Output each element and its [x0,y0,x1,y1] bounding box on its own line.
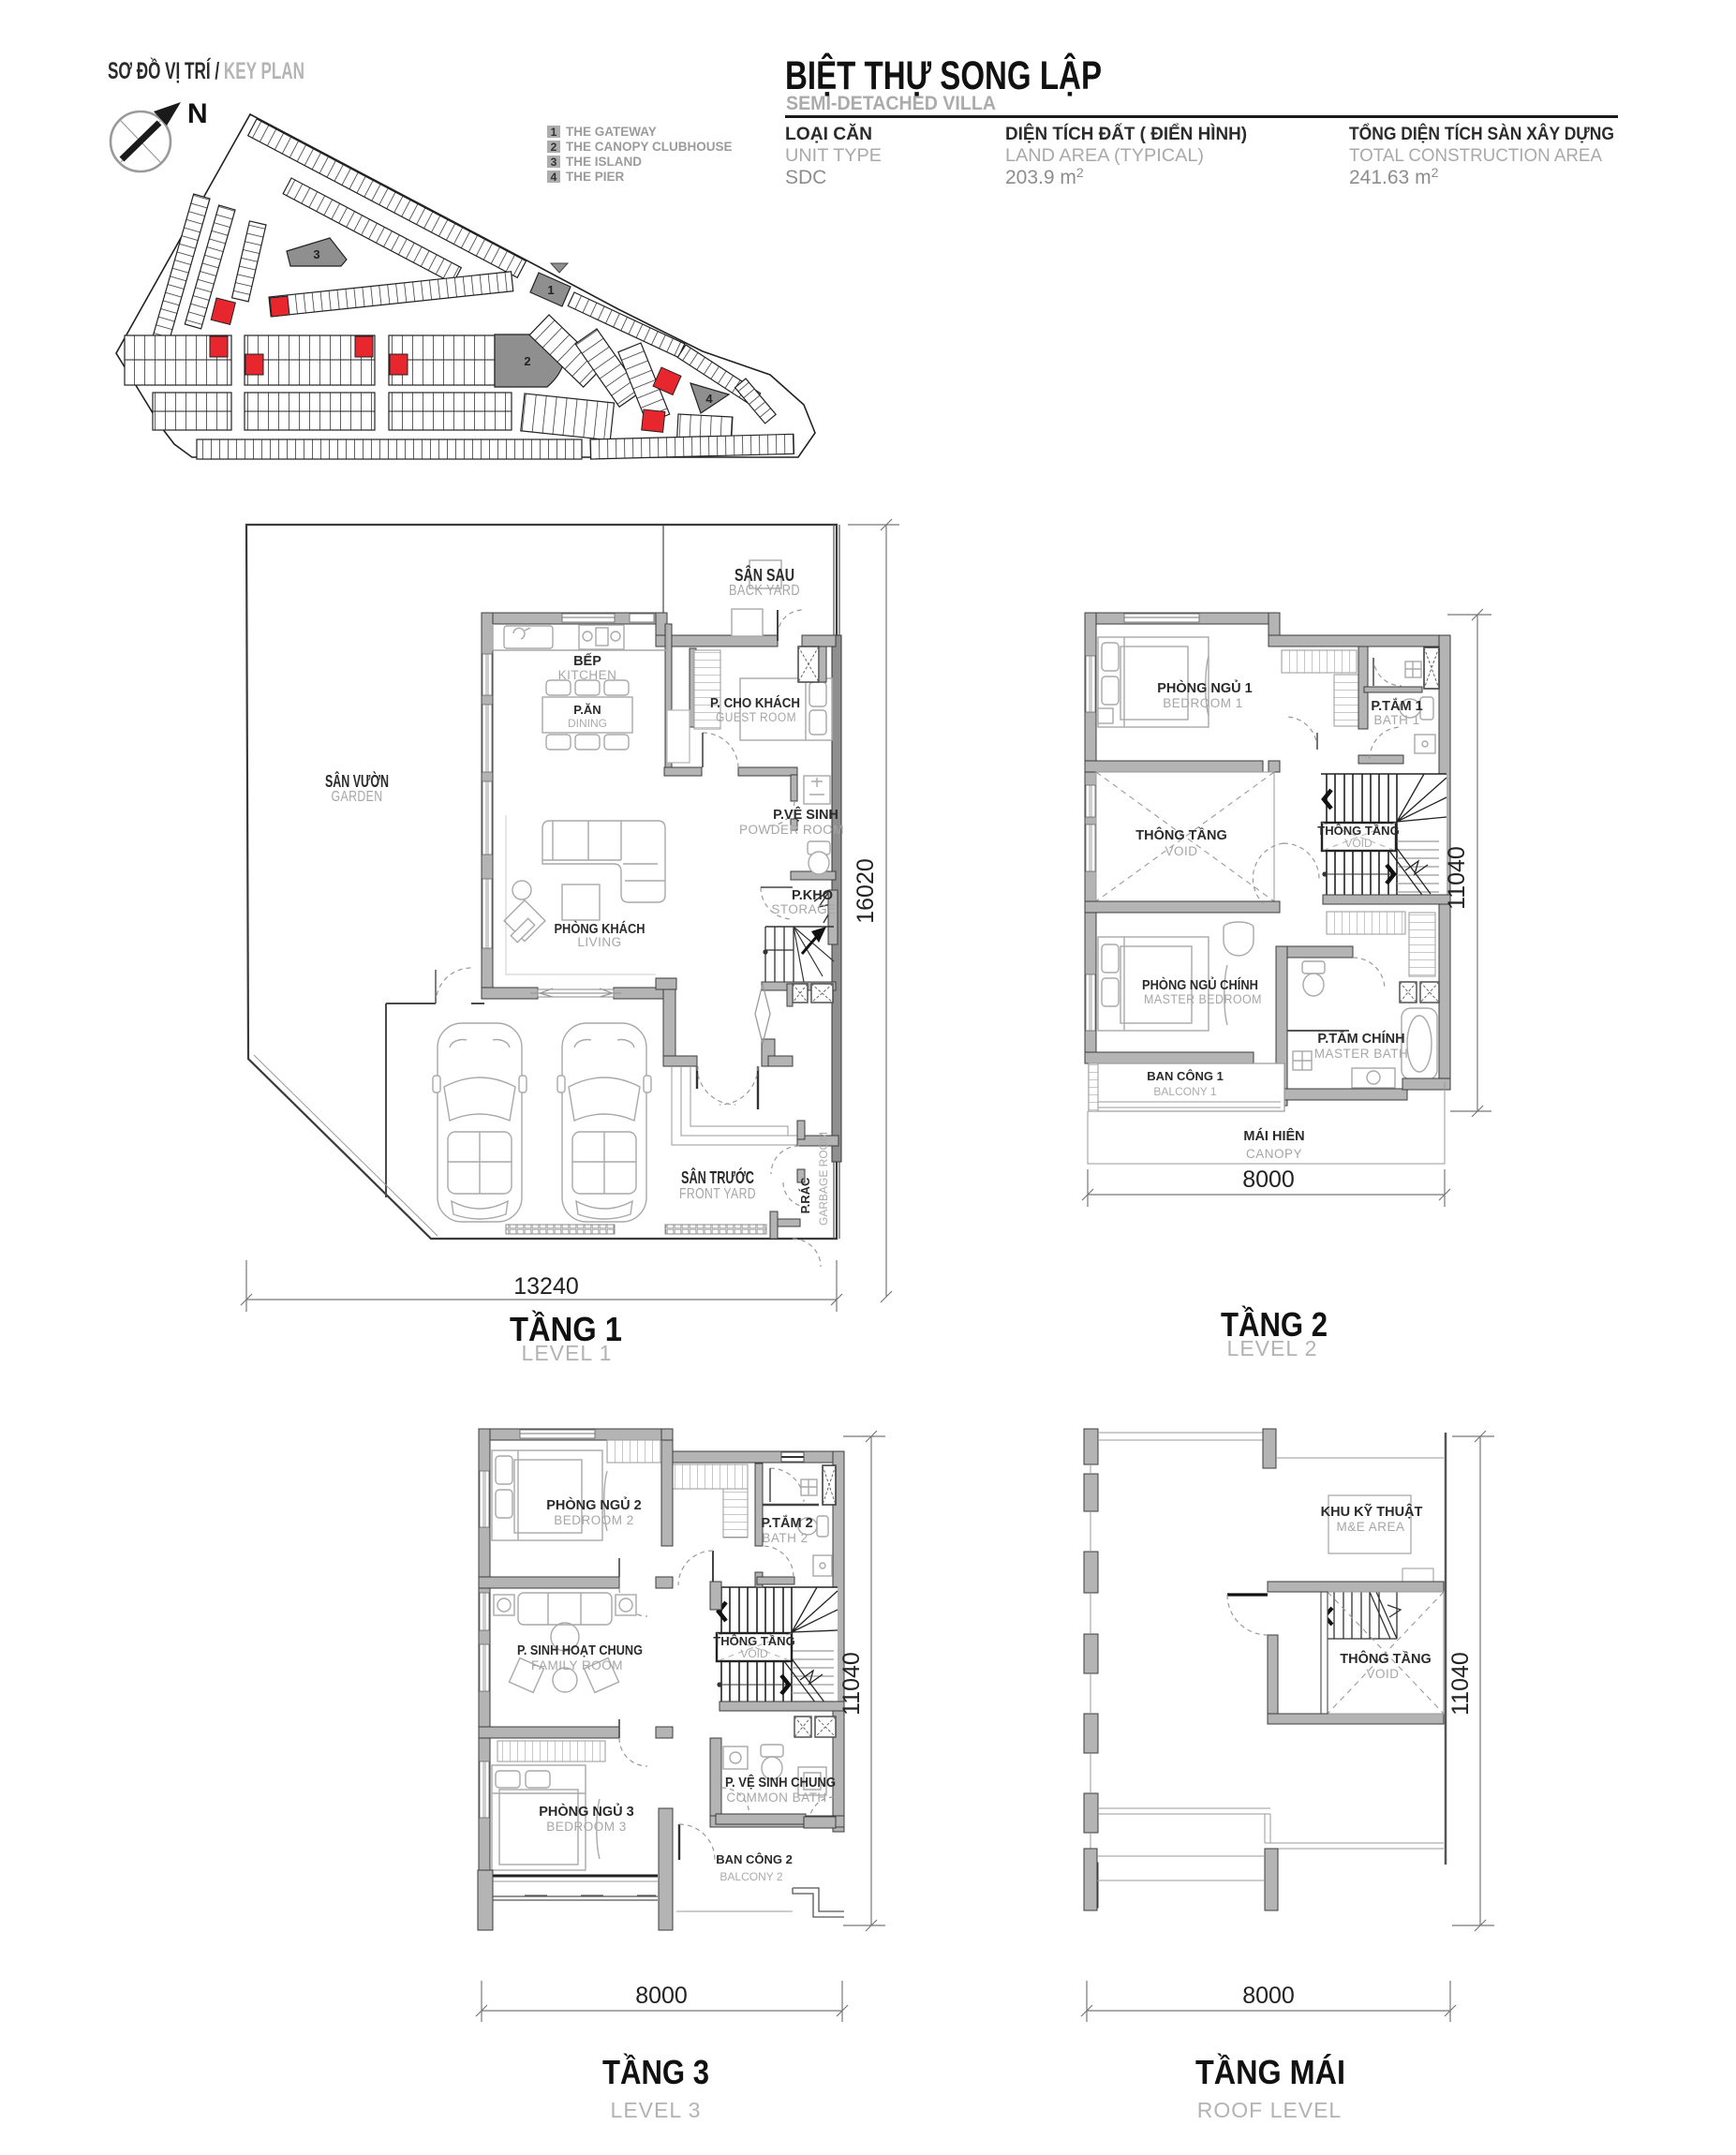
svg-text:BAN CÔNG 1: BAN CÔNG 1 [1147,1069,1224,1083]
svg-text:P.KHO: P.KHO [792,888,833,903]
svg-text:8000: 8000 [1242,1167,1295,1193]
svg-text:FAMILY ROOM: FAMILY ROOM [531,1658,623,1672]
svg-text:M&E AREA: M&E AREA [1336,1520,1404,1534]
svg-text:SEMI-DETACHED VILLA: SEMI-DETACHED VILLA [786,93,996,114]
svg-text:SÂN VƯỜN: SÂN VƯỜN [325,771,389,791]
svg-text:P.VỆ SINH: P.VỆ SINH [773,806,838,823]
svg-text:POWDER ROOM: POWDER ROOM [739,823,844,837]
svg-text:P.ĂN: P.ĂN [573,703,601,717]
svg-text:PHÒNG NGỦ CHÍNH: PHÒNG NGỦ CHÍNH [1142,976,1258,993]
svg-text:GUEST ROOM: GUEST ROOM [716,710,796,724]
svg-text:2: 2 [524,354,530,368]
svg-text:P. CHO KHÁCH: P. CHO KHÁCH [710,695,800,711]
svg-text:241.63 m2: 241.63 m2 [1349,165,1439,188]
svg-text:CANOPY: CANOPY [1246,1147,1302,1161]
svg-text:P. SINH HOẠT CHUNG: P. SINH HOẠT CHUNG [517,1643,643,1658]
svg-text:TOTAL CONSTRUCTION AREA: TOTAL CONSTRUCTION AREA [1349,146,1602,166]
svg-text:13240: 13240 [513,1273,579,1300]
svg-text:THE GATEWAY: THE GATEWAY [566,125,657,139]
svg-text:THÔNG TẦNG: THÔNG TẦNG [1135,826,1226,843]
svg-text:STORAGE: STORAGE [771,902,836,916]
svg-text:PHÒNG NGỦ 3: PHÒNG NGỦ 3 [539,1803,634,1820]
svg-text:16020: 16020 [853,858,879,924]
svg-text:11040: 11040 [1447,1652,1474,1716]
svg-text:BEDROOM 1: BEDROOM 1 [1163,696,1243,710]
svg-text:ROOF LEVEL: ROOF LEVEL [1197,2098,1342,2122]
svg-text:LEVEL 2: LEVEL 2 [1227,1336,1318,1360]
svg-text:1: 1 [551,126,557,139]
svg-text:P.TẮM 1: P.TẮM 1 [1371,697,1422,714]
svg-text:FRONT YARD: FRONT YARD [679,1186,756,1202]
svg-text:VOID: VOID [1366,1667,1399,1681]
svg-text:LAND AREA (TYPICAL): LAND AREA (TYPICAL) [1005,146,1204,166]
svg-text:LEVEL 3: LEVEL 3 [611,2098,702,2122]
svg-text:BẾP: BẾP [573,653,601,669]
svg-text:2: 2 [551,141,557,154]
svg-text:BEDROOM 2: BEDROOM 2 [554,1513,634,1527]
svg-text:BEDROOM 3: BEDROOM 3 [546,1820,627,1834]
svg-text:VOID: VOID [1344,837,1372,850]
svg-text:3: 3 [313,247,319,261]
svg-text:THE PIER: THE PIER [566,170,625,184]
svg-text:4: 4 [705,392,713,406]
svg-text:4: 4 [551,171,557,184]
svg-text:LOẠI CĂN: LOẠI CĂN [785,124,872,144]
svg-text:UNIT TYPE: UNIT TYPE [785,146,882,166]
svg-text:TẦNG MÁI: TẦNG MÁI [1195,2053,1345,2091]
svg-text:THÔNG TẦNG: THÔNG TẦNG [713,1634,794,1648]
svg-text:VOID: VOID [1165,844,1197,858]
svg-text:BATH 2: BATH 2 [762,1531,808,1545]
svg-text:P. VỆ SINH CHUNG: P. VỆ SINH CHUNG [725,1774,836,1791]
svg-text:MASTER BEDROOM: MASTER BEDROOM [1144,992,1262,1006]
svg-text:TẦNG 3: TẦNG 3 [602,2053,709,2091]
svg-text:LEVEL 1: LEVEL 1 [522,1341,613,1365]
svg-text:PHÒNG NGỦ 2: PHÒNG NGỦ 2 [546,1496,642,1513]
svg-text:SÂN SAU: SÂN SAU [734,565,794,585]
svg-text:THÔNG TẦNG: THÔNG TẦNG [1317,824,1399,838]
svg-text:GARDEN: GARDEN [332,789,383,805]
svg-text:BALCONY 2: BALCONY 2 [720,1870,782,1883]
svg-text:TỔNG DIỆN TÍCH SÀN XÂY DỰNG: TỔNG DIỆN TÍCH SÀN XÂY DỰNG [1349,124,1614,144]
svg-text:THE CANOPY CLUBHOUSE: THE CANOPY CLUBHOUSE [566,140,733,154]
svg-text:SƠ ĐỒ VỊ TRÍ / KEY PLAN: SƠ ĐỒ VỊ TRÍ / KEY PLAN [108,56,304,84]
svg-text:BATH 1: BATH 1 [1373,713,1419,727]
svg-text:COMMON BATH: COMMON BATH [726,1791,826,1805]
svg-text:11040: 11040 [838,1652,865,1716]
svg-text:8000: 8000 [1242,1983,1295,2009]
svg-text:SÂN TRƯỚC: SÂN TRƯỚC [681,1167,754,1187]
svg-text:KHU KỸ THUẬT: KHU KỸ THUẬT [1321,1503,1423,1520]
svg-text:1: 1 [547,283,554,297]
svg-text:P.TẮM 2: P.TẮM 2 [761,1514,812,1531]
svg-text:MÁI HIÊN: MÁI HIÊN [1243,1127,1304,1144]
svg-text:THE ISLAND: THE ISLAND [566,155,642,169]
svg-text:SDC: SDC [785,167,826,188]
svg-text:DIỆN TÍCH ĐẤT ( ĐIỂN HÌNH): DIỆN TÍCH ĐẤT ( ĐIỂN HÌNH) [1005,124,1247,144]
svg-text:11040: 11040 [1444,846,1470,910]
svg-text:PHÒNG NGỦ 1: PHÒNG NGỦ 1 [1157,679,1253,696]
svg-text:GARBAGE ROOM: GARBAGE ROOM [817,1132,830,1226]
svg-text:DINING: DINING [568,717,607,730]
svg-text:BACK YARD: BACK YARD [729,583,800,599]
svg-text:203.9 m2: 203.9 m2 [1005,165,1084,188]
svg-text:VOID: VOID [740,1647,768,1660]
svg-text:3: 3 [551,156,557,169]
svg-text:N: N [187,98,208,129]
svg-text:8000: 8000 [635,1983,688,2009]
svg-text:KITCHEN: KITCHEN [558,668,617,682]
svg-text:P.RÁC: P.RÁC [798,1177,812,1213]
svg-text:THÔNG TẦNG: THÔNG TẦNG [1340,1650,1431,1667]
svg-text:LIVING: LIVING [577,935,621,949]
svg-text:BIỆT THỰ SONG LẬP: BIỆT THỰ SONG LẬP [785,52,1102,98]
svg-text:BAN CÔNG 2: BAN CÔNG 2 [716,1852,793,1866]
svg-text:P.TẮM CHÍNH: P.TẮM CHÍNH [1317,1030,1404,1047]
svg-text:BALCONY 1: BALCONY 1 [1153,1085,1216,1098]
svg-text:MASTER BATH: MASTER BATH [1314,1047,1409,1061]
